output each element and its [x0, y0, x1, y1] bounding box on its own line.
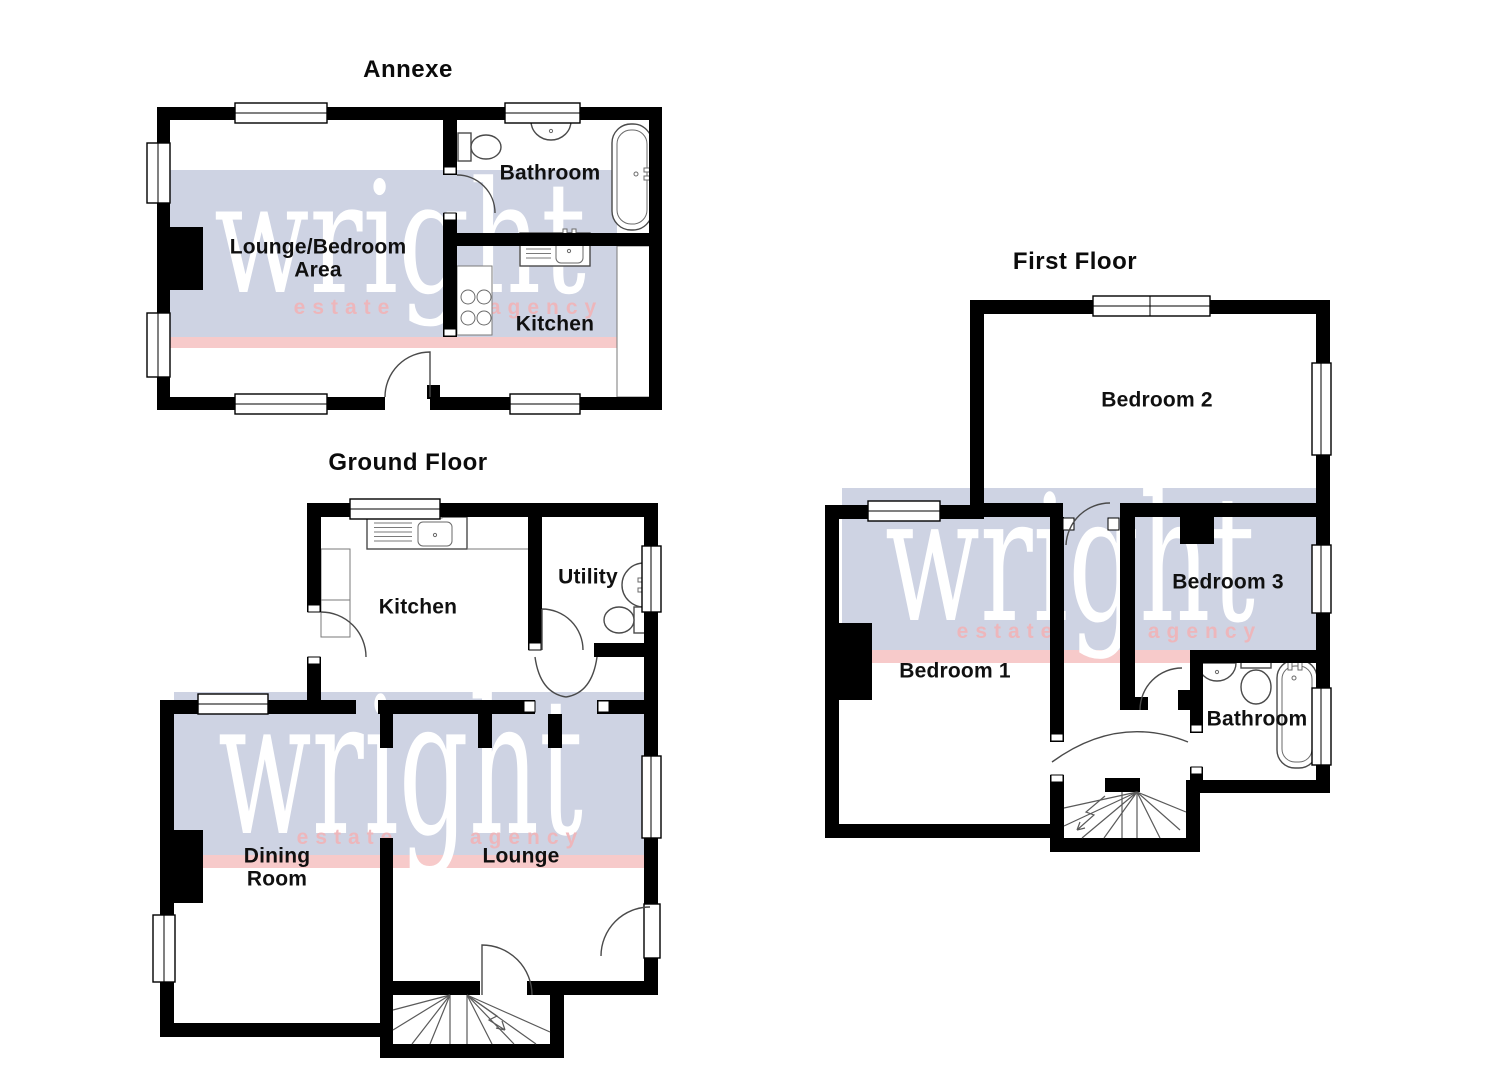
room-label-ground-utility: Utility	[558, 567, 618, 590]
room-label-annexe-bathroom: Bathroom	[500, 163, 601, 186]
room-label-ground-lounge: Lounge	[482, 846, 559, 869]
floor-title-ground: Ground Floor	[328, 449, 487, 477]
room-label-ground-kitchen: Kitchen	[379, 597, 457, 620]
toilet-icon	[604, 607, 646, 633]
first-stairs	[1064, 792, 1186, 838]
landing-door-arc	[1052, 732, 1188, 762]
room-label-annexe-kitchen: Kitchen	[516, 314, 594, 337]
cooker-hob-icon	[457, 266, 492, 335]
room-label-first-bedroom3: Bedroom 3	[1172, 572, 1284, 595]
watermark-estate-text: estate	[957, 620, 1060, 643]
utility-door-arc	[542, 609, 583, 650]
room-label-annexe-lounge-bedroom: Lounge/Bedroom Area	[230, 236, 407, 281]
ground-stairs	[393, 995, 550, 1044]
room-label-first-bedroom1: Bedroom 1	[899, 661, 1011, 684]
toilet-icon	[458, 133, 501, 161]
watermark-estate-text: estate	[294, 296, 397, 319]
room-label-first-bedroom2: Bedroom 2	[1101, 390, 1213, 413]
lounge-entrance-door-arc	[601, 907, 650, 956]
kitchen-counter-lines	[321, 549, 528, 600]
floor-title-first: First Floor	[1013, 248, 1137, 276]
first-watermark: wright estate agency	[842, 459, 1316, 663]
watermark-agency-text: agency	[1148, 620, 1262, 643]
kitchen-counter	[617, 246, 651, 397]
bathtub-icon	[612, 124, 652, 230]
floorplan-page: wright estate agency	[0, 0, 1485, 1080]
stairs-door-arc	[482, 945, 532, 995]
toilet-icon	[1241, 656, 1271, 704]
entrance-door-leaf	[644, 904, 660, 958]
room-label-first-bathroom: Bathroom	[1207, 709, 1308, 732]
room-label-ground-dining: Dining Room	[244, 845, 311, 890]
floor-title-annexe: Annexe	[363, 56, 453, 84]
floorplan-drawing: wright estate agency	[0, 0, 1485, 1080]
annexe-entrance-door-arc	[385, 352, 430, 397]
kitchen-counter	[321, 549, 350, 637]
